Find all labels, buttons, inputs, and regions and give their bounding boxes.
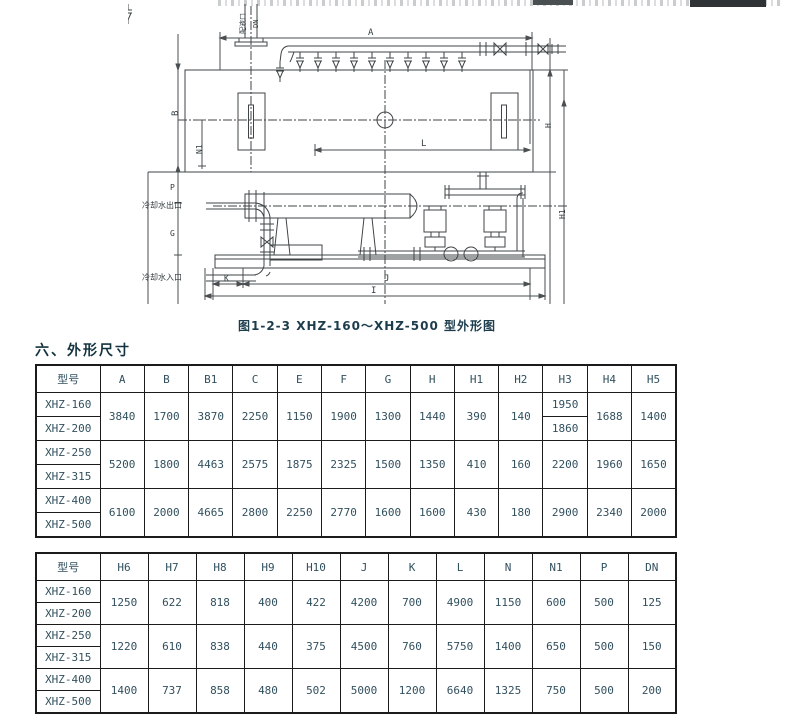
dim-l-label: L (421, 139, 426, 149)
value-cell: 150 (628, 625, 676, 669)
column-header: L (436, 553, 484, 581)
value-cell: 2340 (587, 489, 631, 538)
value-cell: 1325 (484, 669, 532, 714)
value-cell: 600 (532, 581, 580, 625)
value-cell: 650 (532, 625, 580, 669)
pump-unit-2 (484, 206, 506, 251)
model-cell: XHZ-160 (36, 581, 100, 603)
value-cell: 422 (292, 581, 340, 625)
pump-unit-1 (424, 206, 446, 251)
value-cell: 838 (196, 625, 244, 669)
value-cell: 1650 (632, 441, 676, 489)
value-cell: 1688 (587, 393, 631, 441)
value-cell: 500 (580, 581, 628, 625)
value-cell: 2250 (233, 393, 277, 441)
value-cell: 1950 (543, 393, 587, 417)
value-cell: 760 (388, 625, 436, 669)
dimension-lines (148, 32, 568, 304)
column-header: B1 (189, 365, 233, 393)
clipped-text-artifact-dark (690, 0, 766, 7)
column-header: H5 (632, 365, 676, 393)
value-cell: 5000 (340, 669, 388, 714)
column-header: A (100, 365, 144, 393)
value-cell: 500 (580, 669, 628, 714)
value-cell: 1700 (144, 393, 188, 441)
value-cell: 160 (499, 441, 543, 489)
value-cell: 2325 (321, 441, 365, 489)
spray-header-pipe (280, 42, 566, 62)
column-header: E (277, 365, 321, 393)
value-cell: 1150 (484, 581, 532, 625)
cooling-water-outlet-label: 冷却水出口 (142, 200, 182, 210)
dim-g-label: G (170, 229, 175, 238)
value-cell: 6100 (100, 489, 144, 538)
table-row: XHZ-400140073785848050250001200664013257… (36, 669, 676, 691)
value-cell: 1200 (388, 669, 436, 714)
column-header: H10 (292, 553, 340, 581)
value-cell: 2770 (321, 489, 365, 538)
column-header: H (410, 365, 454, 393)
value-cell: 125 (628, 581, 676, 625)
value-cell: 5750 (436, 625, 484, 669)
outline-dimensions-table-2: 型号H6H7H8H9H10JKLNN1PDNXHZ-16012506228184… (35, 552, 677, 714)
value-cell: 2250 (277, 489, 321, 538)
column-header: H4 (587, 365, 631, 393)
value-cell: 4463 (189, 441, 233, 489)
value-cell: 1350 (410, 441, 454, 489)
column-header: K (388, 553, 436, 581)
column-header: 型号 (36, 365, 100, 393)
value-cell: 750 (532, 669, 580, 714)
value-cell: 858 (196, 669, 244, 714)
value-cell: 430 (454, 489, 498, 538)
dim-a-label: A (368, 28, 374, 38)
table-row: XHZ-400610020004665280022502770160016004… (36, 489, 676, 513)
table-row: XHZ-160384017003870225011501900130014403… (36, 393, 676, 417)
value-cell: 1900 (321, 393, 365, 441)
value-cell: 2000 (632, 489, 676, 538)
column-header: H7 (148, 553, 196, 581)
dim-k-label: K (224, 274, 229, 283)
column-header: J (340, 553, 388, 581)
dim-h1-label: H1 (558, 209, 567, 219)
model-cell: XHZ-400 (36, 669, 100, 691)
value-cell: 1400 (100, 669, 148, 714)
value-cell: 5200 (100, 441, 144, 489)
value-cell: 500 (580, 625, 628, 669)
figure-caption: 图1-2-3 XHZ-160～XHZ-500 型外形图 (0, 317, 734, 334)
column-header: C (233, 365, 277, 393)
model-cell: XHZ-500 (36, 691, 100, 714)
dim-n1-label: N1 (195, 144, 204, 154)
column-header: B (144, 365, 188, 393)
model-cell: XHZ-160 (36, 393, 100, 417)
value-cell: 180 (499, 489, 543, 538)
value-cell: 1875 (277, 441, 321, 489)
value-cell: 1500 (366, 441, 410, 489)
column-header: N (484, 553, 532, 581)
feed-port-label: 配液口 (238, 13, 247, 34)
value-cell: 480 (244, 669, 292, 714)
value-cell: 1860 (543, 417, 587, 441)
model-cell: XHZ-315 (36, 465, 100, 489)
value-cell: 6640 (436, 669, 484, 714)
feed-port-dn-label: DN (252, 20, 260, 28)
value-cell: 1960 (587, 441, 631, 489)
value-cell: 1220 (100, 625, 148, 669)
value-cell: 1800 (144, 441, 188, 489)
column-header: H2 (499, 365, 543, 393)
value-cell: 610 (148, 625, 196, 669)
dim-j-label: J (384, 274, 389, 284)
value-cell: 375 (292, 625, 340, 669)
value-cell: 1150 (277, 393, 321, 441)
column-header: F (321, 365, 365, 393)
value-cell: 4900 (436, 581, 484, 625)
value-cell: 1400 (632, 393, 676, 441)
value-cell: 4200 (340, 581, 388, 625)
outline-drawing-svg: A B N1 L P G K J I H H1 配液口 DN 冷却水出口 冷却水… (128, 4, 588, 312)
value-cell: 200 (628, 669, 676, 714)
column-header: H1 (454, 365, 498, 393)
value-cell: 390 (454, 393, 498, 441)
column-header: N1 (532, 553, 580, 581)
value-cell: 2900 (543, 489, 587, 538)
column-header: H3 (543, 365, 587, 393)
model-cell: XHZ-250 (36, 625, 100, 647)
value-cell: 440 (244, 625, 292, 669)
value-cell: 140 (499, 393, 543, 441)
value-cell: 1400 (484, 625, 532, 669)
model-cell: XHZ-500 (36, 513, 100, 538)
cooling-water-inlet-label: 冷却水入口 (142, 272, 182, 282)
value-cell: 1600 (366, 489, 410, 538)
value-cell: 4665 (189, 489, 233, 538)
value-cell: 1250 (100, 581, 148, 625)
value-cell: 2000 (144, 489, 188, 538)
dim-b-label: B (171, 111, 181, 116)
dim-i-label: I (371, 286, 376, 296)
value-cell: 3870 (189, 393, 233, 441)
value-cell: 410 (454, 441, 498, 489)
value-cell: 737 (148, 669, 196, 714)
model-cell: XHZ-400 (36, 489, 100, 513)
value-cell: 400 (244, 581, 292, 625)
table-row: XHZ-250122061083844037545007605750140065… (36, 625, 676, 647)
elevation-view (148, 172, 568, 281)
section-heading: 六、外形尺寸 (35, 340, 131, 360)
outline-dimensions-table-1: 型号ABB1CEFGHH1H2H3H4H5XHZ-160384017003870… (35, 364, 677, 538)
model-cell: XHZ-250 (36, 441, 100, 465)
value-cell: 1440 (410, 393, 454, 441)
value-cell: 2575 (233, 441, 277, 489)
outline-drawing-figure: A B N1 L P G K J I H H1 配液口 DN 冷却水出口 冷却水… (128, 4, 588, 312)
column-header: 型号 (36, 553, 100, 581)
column-header: H6 (100, 553, 148, 581)
control-box (270, 245, 322, 260)
value-cell: 4500 (340, 625, 388, 669)
value-cell: 700 (388, 581, 436, 625)
value-cell: 2200 (543, 441, 587, 489)
column-header: H8 (196, 553, 244, 581)
column-header: P (580, 553, 628, 581)
value-cell: 2800 (233, 489, 277, 538)
value-cell: 3840 (100, 393, 144, 441)
dim-p-label: P (170, 183, 175, 192)
value-cell: 622 (148, 581, 196, 625)
manual-page: { "page": { "caption": "图1-2-3 XHZ-160～X… (0, 0, 800, 721)
model-cell: XHZ-315 (36, 647, 100, 669)
column-header: G (366, 365, 410, 393)
column-header: DN (628, 553, 676, 581)
model-cell: XHZ-200 (36, 417, 100, 441)
model-cell: XHZ-200 (36, 603, 100, 625)
value-cell: 818 (196, 581, 244, 625)
value-cell: 502 (292, 669, 340, 714)
dim-h-label: H (544, 123, 553, 128)
value-cell: 1300 (366, 393, 410, 441)
table-row: XHZ-250520018004463257518752325150013504… (36, 441, 676, 465)
column-header: H9 (244, 553, 292, 581)
table-row: XHZ-160125062281840042242007004900115060… (36, 581, 676, 603)
value-cell: 1600 (410, 489, 454, 538)
